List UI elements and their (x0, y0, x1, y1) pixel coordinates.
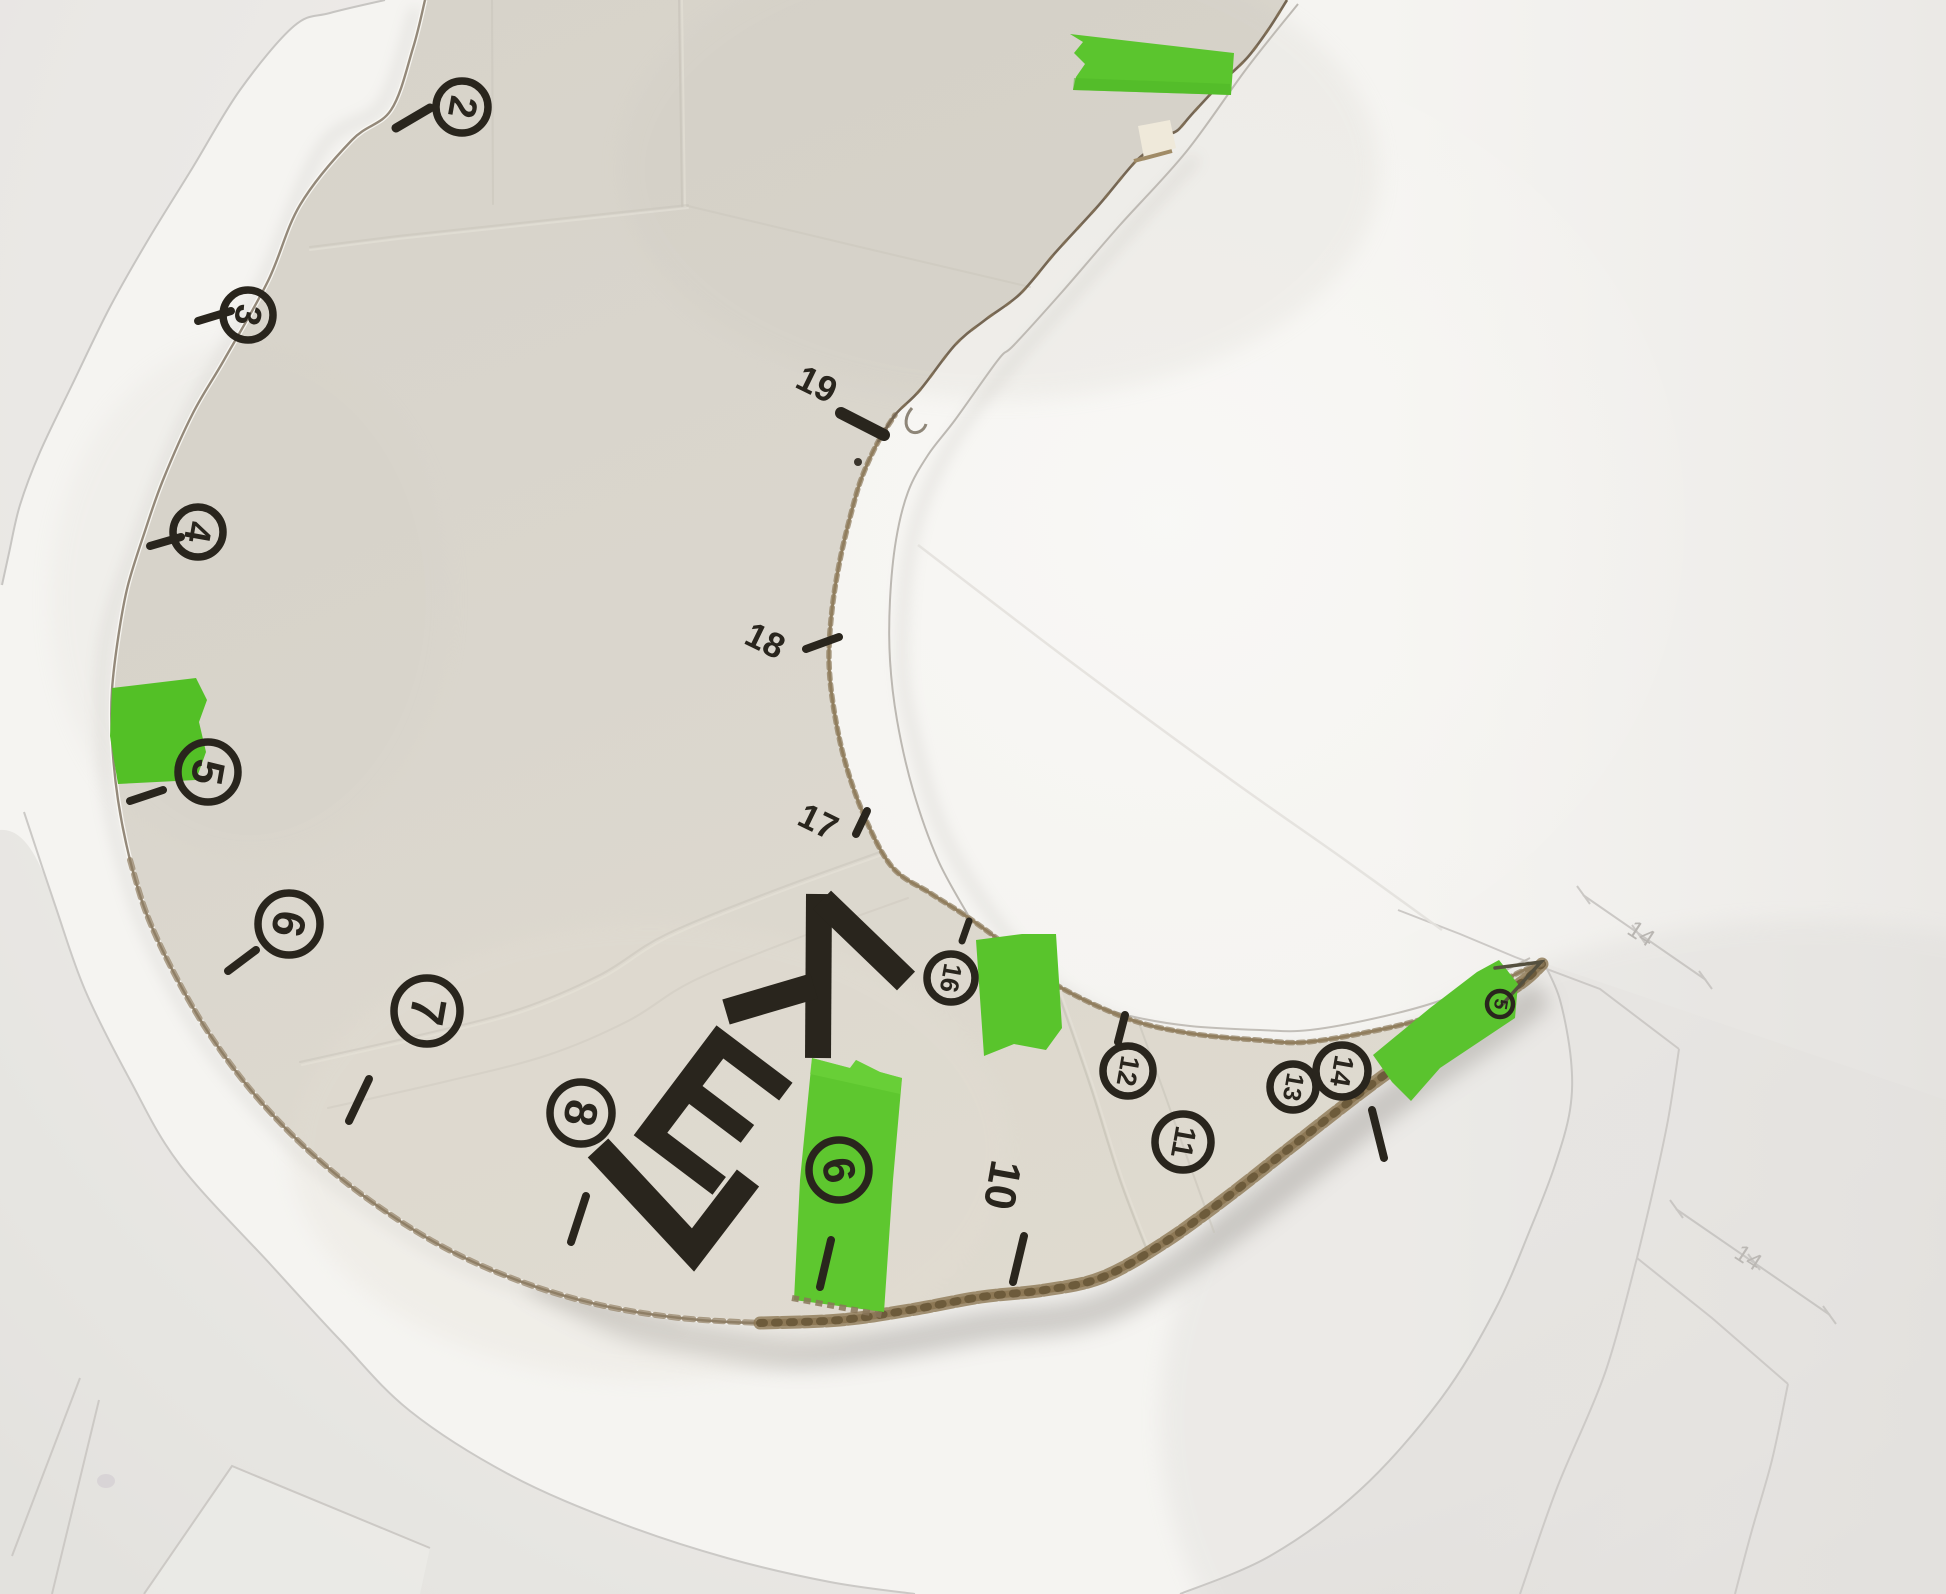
svg-text:12: 12 (1111, 1054, 1146, 1089)
svg-text:16: 16 (934, 961, 969, 995)
svg-text:13: 13 (1277, 1071, 1309, 1103)
svg-text:11: 11 (1164, 1124, 1202, 1161)
svg-text:14: 14 (1324, 1053, 1360, 1089)
svg-text:10: 10 (974, 1157, 1031, 1214)
